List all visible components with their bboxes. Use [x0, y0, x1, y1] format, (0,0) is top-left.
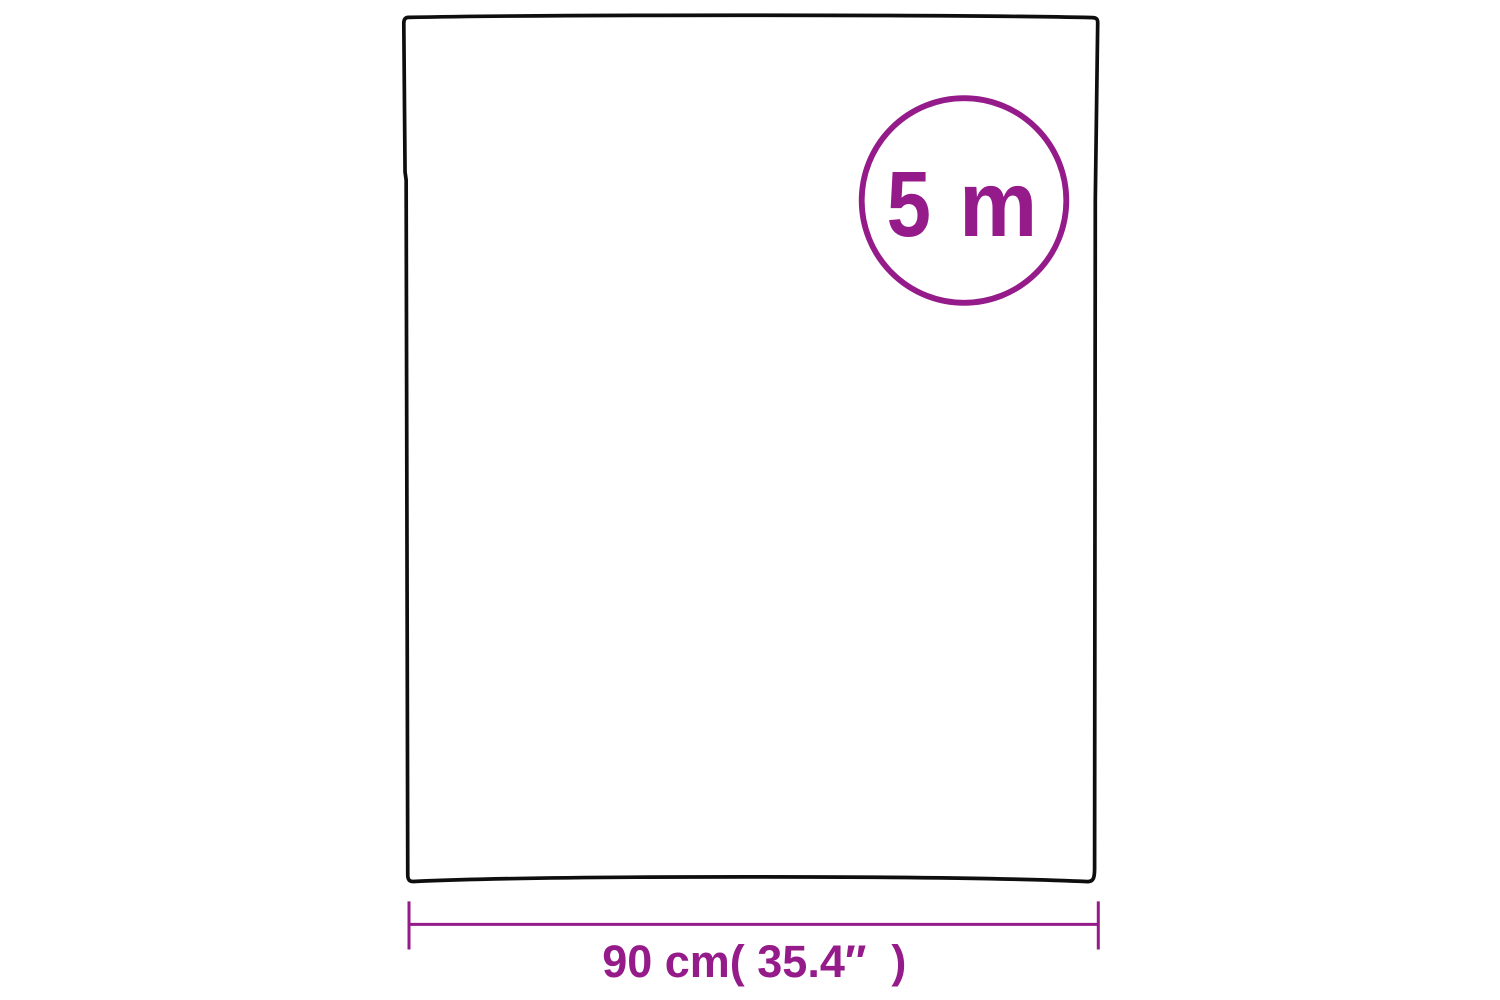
- svg-text:m: m: [959, 153, 1037, 256]
- svg-text:5: 5: [887, 153, 931, 256]
- svg-text:90 cm( 35.4″ ): 90 cm( 35.4″ ): [602, 936, 906, 987]
